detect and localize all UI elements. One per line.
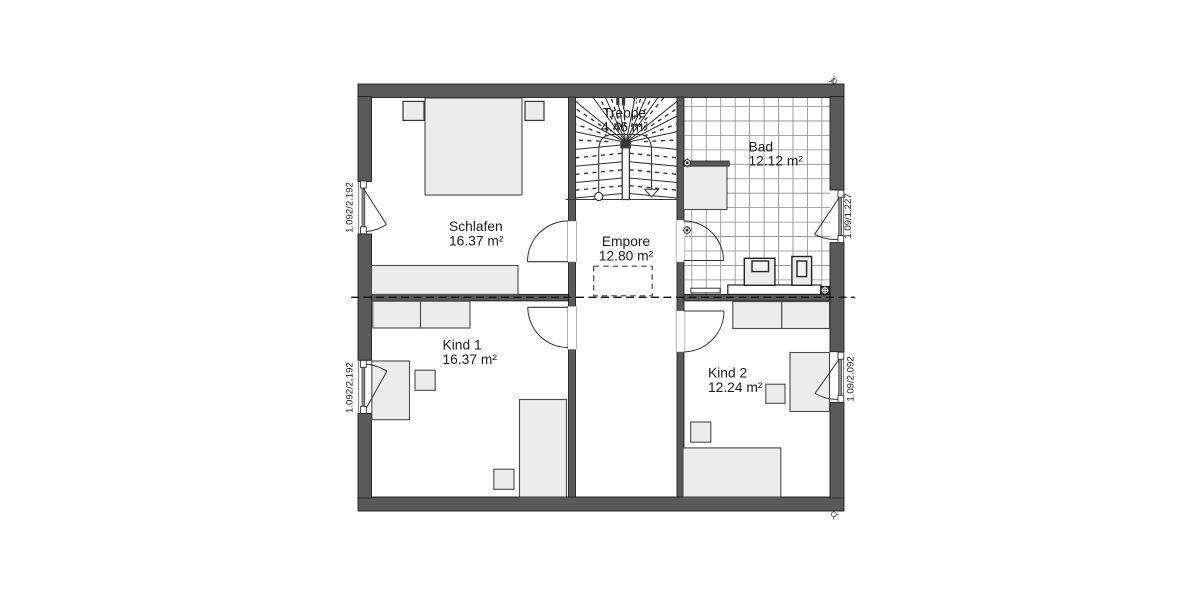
svg-text:Schlafen: Schlafen bbox=[449, 219, 503, 234]
svg-text:1.09/2.092: 1.09/2.092 bbox=[846, 356, 857, 401]
svg-text:16.37 m²: 16.37 m² bbox=[449, 234, 504, 249]
svg-text:Kind 1: Kind 1 bbox=[443, 338, 482, 353]
svg-text:12.12 m²: 12.12 m² bbox=[749, 153, 804, 168]
svg-text:4.46 m²: 4.46 m² bbox=[601, 120, 648, 135]
svg-text:16.37 m²: 16.37 m² bbox=[443, 352, 498, 367]
svg-text:Bad: Bad bbox=[749, 139, 774, 154]
svg-text:Empore: Empore bbox=[602, 234, 651, 249]
svg-text:12.24 m²: 12.24 m² bbox=[708, 380, 763, 395]
svg-text:1.092/2.192: 1.092/2.192 bbox=[345, 362, 356, 413]
svg-text:1.092/2.192: 1.092/2.192 bbox=[345, 182, 356, 233]
svg-text:12.80 m²: 12.80 m² bbox=[599, 249, 654, 264]
svg-text:Treppe: Treppe bbox=[603, 106, 647, 121]
svg-text:Kind 2: Kind 2 bbox=[708, 366, 747, 381]
svg-text:1.09/1.227: 1.09/1.227 bbox=[843, 193, 854, 238]
